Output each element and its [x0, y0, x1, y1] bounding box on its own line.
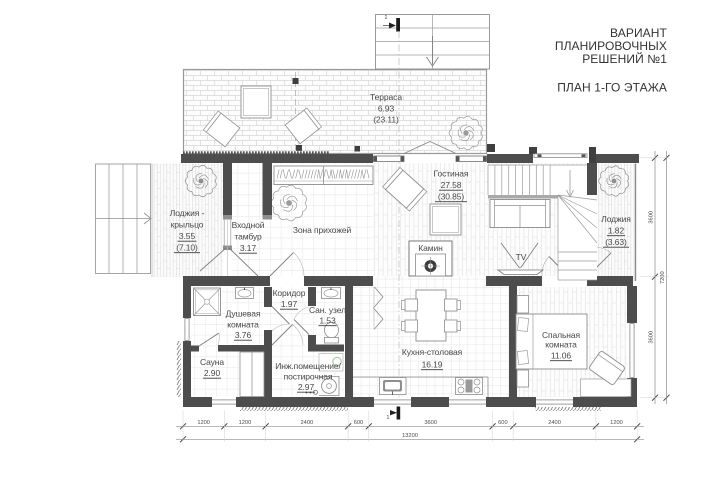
svg-text:РЕШЕНИЙ №1: РЕШЕНИЙ №1	[582, 51, 667, 66]
svg-text:ПЛАН 1-ГО ЭТАЖА: ПЛАН 1-ГО ЭТАЖА	[557, 81, 667, 95]
svg-text:1.82: 1.82	[608, 226, 625, 236]
svg-text:1: 1	[384, 15, 387, 21]
svg-text:(3.63): (3.63)	[605, 237, 627, 247]
svg-text:ВАРИАНТ: ВАРИАНТ	[610, 26, 668, 40]
svg-text:7200: 7200	[660, 271, 666, 284]
svg-text:1: 1	[386, 415, 389, 421]
svg-text:3600: 3600	[649, 331, 655, 344]
svg-text:Лоджия: Лоджия	[601, 214, 631, 224]
svg-text:Камин: Камин	[418, 243, 443, 253]
svg-text:Кухня-столовая: Кухня-столовая	[402, 347, 463, 357]
svg-text:11.06: 11.06	[551, 351, 572, 361]
svg-text:(30.85): (30.85)	[438, 192, 465, 202]
svg-text:Терраса: Терраса	[370, 92, 402, 102]
svg-text:Инж.помещение/: Инж.помещение/	[275, 361, 341, 371]
svg-text:3.55: 3.55	[179, 231, 196, 241]
svg-text:1.97: 1.97	[281, 299, 298, 309]
svg-text:600: 600	[354, 420, 364, 426]
svg-text:2400: 2400	[301, 420, 314, 426]
svg-text:комната: комната	[545, 340, 577, 350]
svg-text:Гостиная: Гостиная	[434, 169, 469, 179]
svg-text:13200: 13200	[402, 433, 418, 439]
svg-text:(7.10): (7.10)	[176, 243, 198, 253]
svg-text:Сауна: Сауна	[200, 357, 224, 367]
svg-text:6.93: 6.93	[378, 104, 395, 114]
svg-text:1.53: 1.53	[319, 316, 336, 326]
svg-text:Спальная: Спальная	[542, 330, 581, 340]
svg-text:Зона прихожей: Зона прихожей	[293, 225, 352, 235]
svg-text:3.76: 3.76	[235, 330, 252, 340]
svg-text:Лоджия -: Лоджия -	[170, 208, 205, 218]
svg-text:3.17: 3.17	[240, 243, 257, 253]
svg-text:1200: 1200	[239, 420, 252, 426]
svg-text:крыльцо: крыльцо	[171, 220, 204, 230]
svg-text:2400: 2400	[548, 420, 561, 426]
svg-text:(23.11): (23.11)	[373, 115, 399, 125]
svg-text:Сан. узел: Сан. узел	[309, 305, 346, 315]
svg-text:Коридор: Коридор	[273, 288, 306, 298]
svg-text:1200: 1200	[610, 420, 623, 426]
svg-text:1200: 1200	[197, 420, 210, 426]
svg-text:TV: TV	[516, 252, 527, 262]
svg-text:3600: 3600	[649, 211, 655, 224]
svg-text:2.90: 2.90	[204, 368, 221, 378]
svg-text:постирочная: постирочная	[284, 372, 333, 382]
svg-text:комната: комната	[227, 320, 259, 330]
svg-text:тамбур: тамбур	[234, 232, 262, 242]
svg-text:2.97: 2.97	[298, 382, 315, 392]
svg-text:3600: 3600	[424, 420, 437, 426]
svg-text:16.19: 16.19	[422, 360, 443, 370]
svg-text:27.58: 27.58	[441, 180, 462, 190]
svg-text:Душевая: Душевая	[226, 309, 261, 319]
svg-text:600: 600	[498, 420, 508, 426]
svg-text:Входной: Входной	[232, 220, 265, 230]
svg-text:ПЛАНИРОВОЧНЫХ: ПЛАНИРОВОЧНЫХ	[555, 39, 667, 53]
